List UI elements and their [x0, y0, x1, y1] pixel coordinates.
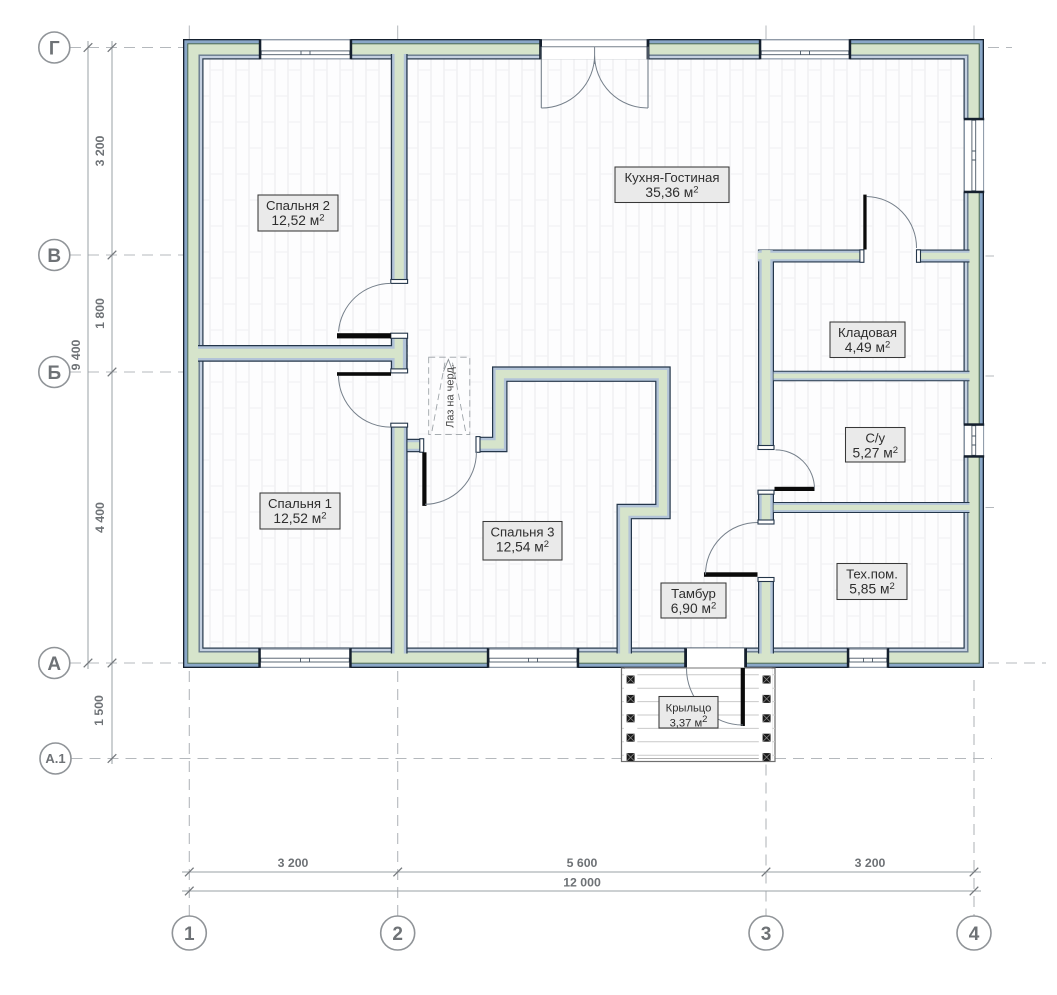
svg-text:А.1: А.1	[45, 751, 65, 766]
svg-text:3 200: 3 200	[855, 856, 886, 870]
svg-text:Крыльцо: Крыльцо	[666, 702, 712, 714]
svg-text:5 600: 5 600	[567, 856, 598, 870]
svg-text:1 800: 1 800	[93, 298, 107, 329]
svg-text:12,54 м2: 12,54 м2	[496, 539, 549, 555]
svg-text:С/у: С/у	[865, 430, 885, 445]
svg-text:3 200: 3 200	[278, 856, 309, 870]
svg-text:Кладовая: Кладовая	[838, 325, 897, 340]
svg-text:9 400: 9 400	[69, 339, 83, 370]
svg-text:Спальня 2: Спальня 2	[266, 198, 330, 213]
svg-text:Кухня-Гостиная: Кухня-Гостиная	[624, 170, 719, 185]
svg-text:5,27 м2: 5,27 м2	[853, 445, 898, 461]
svg-text:1: 1	[184, 924, 195, 945]
svg-text:4 400: 4 400	[93, 502, 107, 533]
svg-text:4,49 м2: 4,49 м2	[845, 340, 890, 356]
svg-text:Тех.пом.: Тех.пом.	[846, 566, 898, 581]
svg-text:Г: Г	[49, 38, 60, 59]
svg-text:12,52 м2: 12,52 м2	[273, 511, 326, 527]
svg-text:6,90 м2: 6,90 м2	[671, 601, 716, 617]
svg-text:4: 4	[969, 924, 980, 945]
svg-text:В: В	[47, 246, 61, 267]
svg-text:1 500: 1 500	[92, 695, 106, 726]
svg-text:А: А	[47, 654, 61, 675]
svg-text:Спальня 1: Спальня 1	[268, 496, 332, 511]
svg-text:Б: Б	[47, 363, 61, 384]
svg-text:2: 2	[392, 924, 403, 945]
svg-text:35,36 м2: 35,36 м2	[645, 185, 698, 201]
svg-text:3 200: 3 200	[93, 135, 107, 166]
svg-text:Спальня 3: Спальня 3	[491, 524, 555, 539]
svg-text:Тамбур: Тамбур	[671, 586, 716, 601]
svg-text:12 000: 12 000	[563, 876, 601, 890]
svg-text:12,52 м2: 12,52 м2	[271, 213, 324, 229]
svg-text:Лаз на черд.: Лаз на черд.	[445, 364, 457, 428]
svg-text:3: 3	[761, 924, 772, 945]
svg-text:5,85 м2: 5,85 м2	[849, 581, 894, 597]
